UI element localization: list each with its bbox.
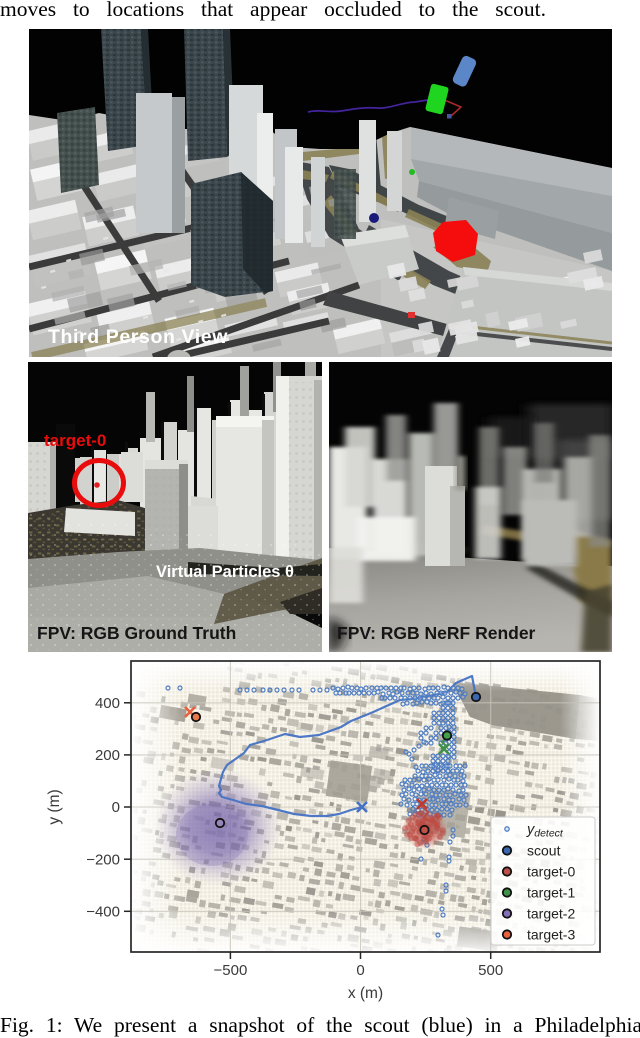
svg-text:target-1: target-1 — [527, 885, 575, 901]
svg-text:FPV: RGB Ground Truth: FPV: RGB Ground Truth — [37, 623, 236, 643]
svg-text:target-3: target-3 — [527, 927, 575, 943]
svg-text:Third Person View: Third Person View — [48, 326, 228, 348]
svg-text:−500: −500 — [214, 962, 248, 979]
svg-text:target-2: target-2 — [527, 906, 575, 922]
svg-text:scout: scout — [527, 843, 561, 859]
svg-text:y (m): y (m) — [46, 789, 63, 824]
svg-text:FPV: RGB NeRF Render: FPV: RGB NeRF Render — [337, 623, 536, 643]
svg-text:target-0: target-0 — [44, 431, 106, 450]
svg-text:x (m): x (m) — [348, 985, 383, 1002]
svg-text:Virtual Particles θ: Virtual Particles θ — [156, 563, 294, 581]
svg-text:400: 400 — [95, 695, 120, 712]
svg-text:−200: −200 — [86, 851, 120, 868]
svg-text:0: 0 — [356, 962, 364, 979]
svg-text:500: 500 — [478, 962, 503, 979]
svg-text:200: 200 — [95, 747, 120, 764]
svg-text:0: 0 — [112, 799, 120, 816]
svg-text:target-0: target-0 — [527, 864, 575, 880]
svg-text:−400: −400 — [86, 904, 120, 921]
